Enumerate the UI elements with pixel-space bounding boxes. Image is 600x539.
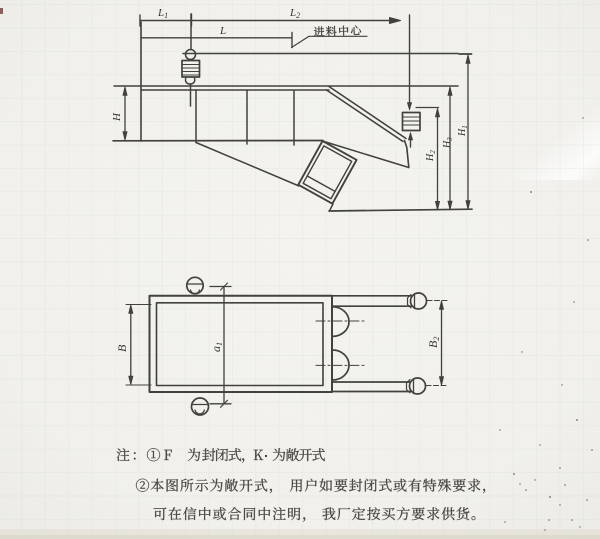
- svg-text:H: H: [111, 112, 123, 122]
- svg-text:B: B: [115, 344, 129, 352]
- svg-text:L: L: [219, 25, 226, 37]
